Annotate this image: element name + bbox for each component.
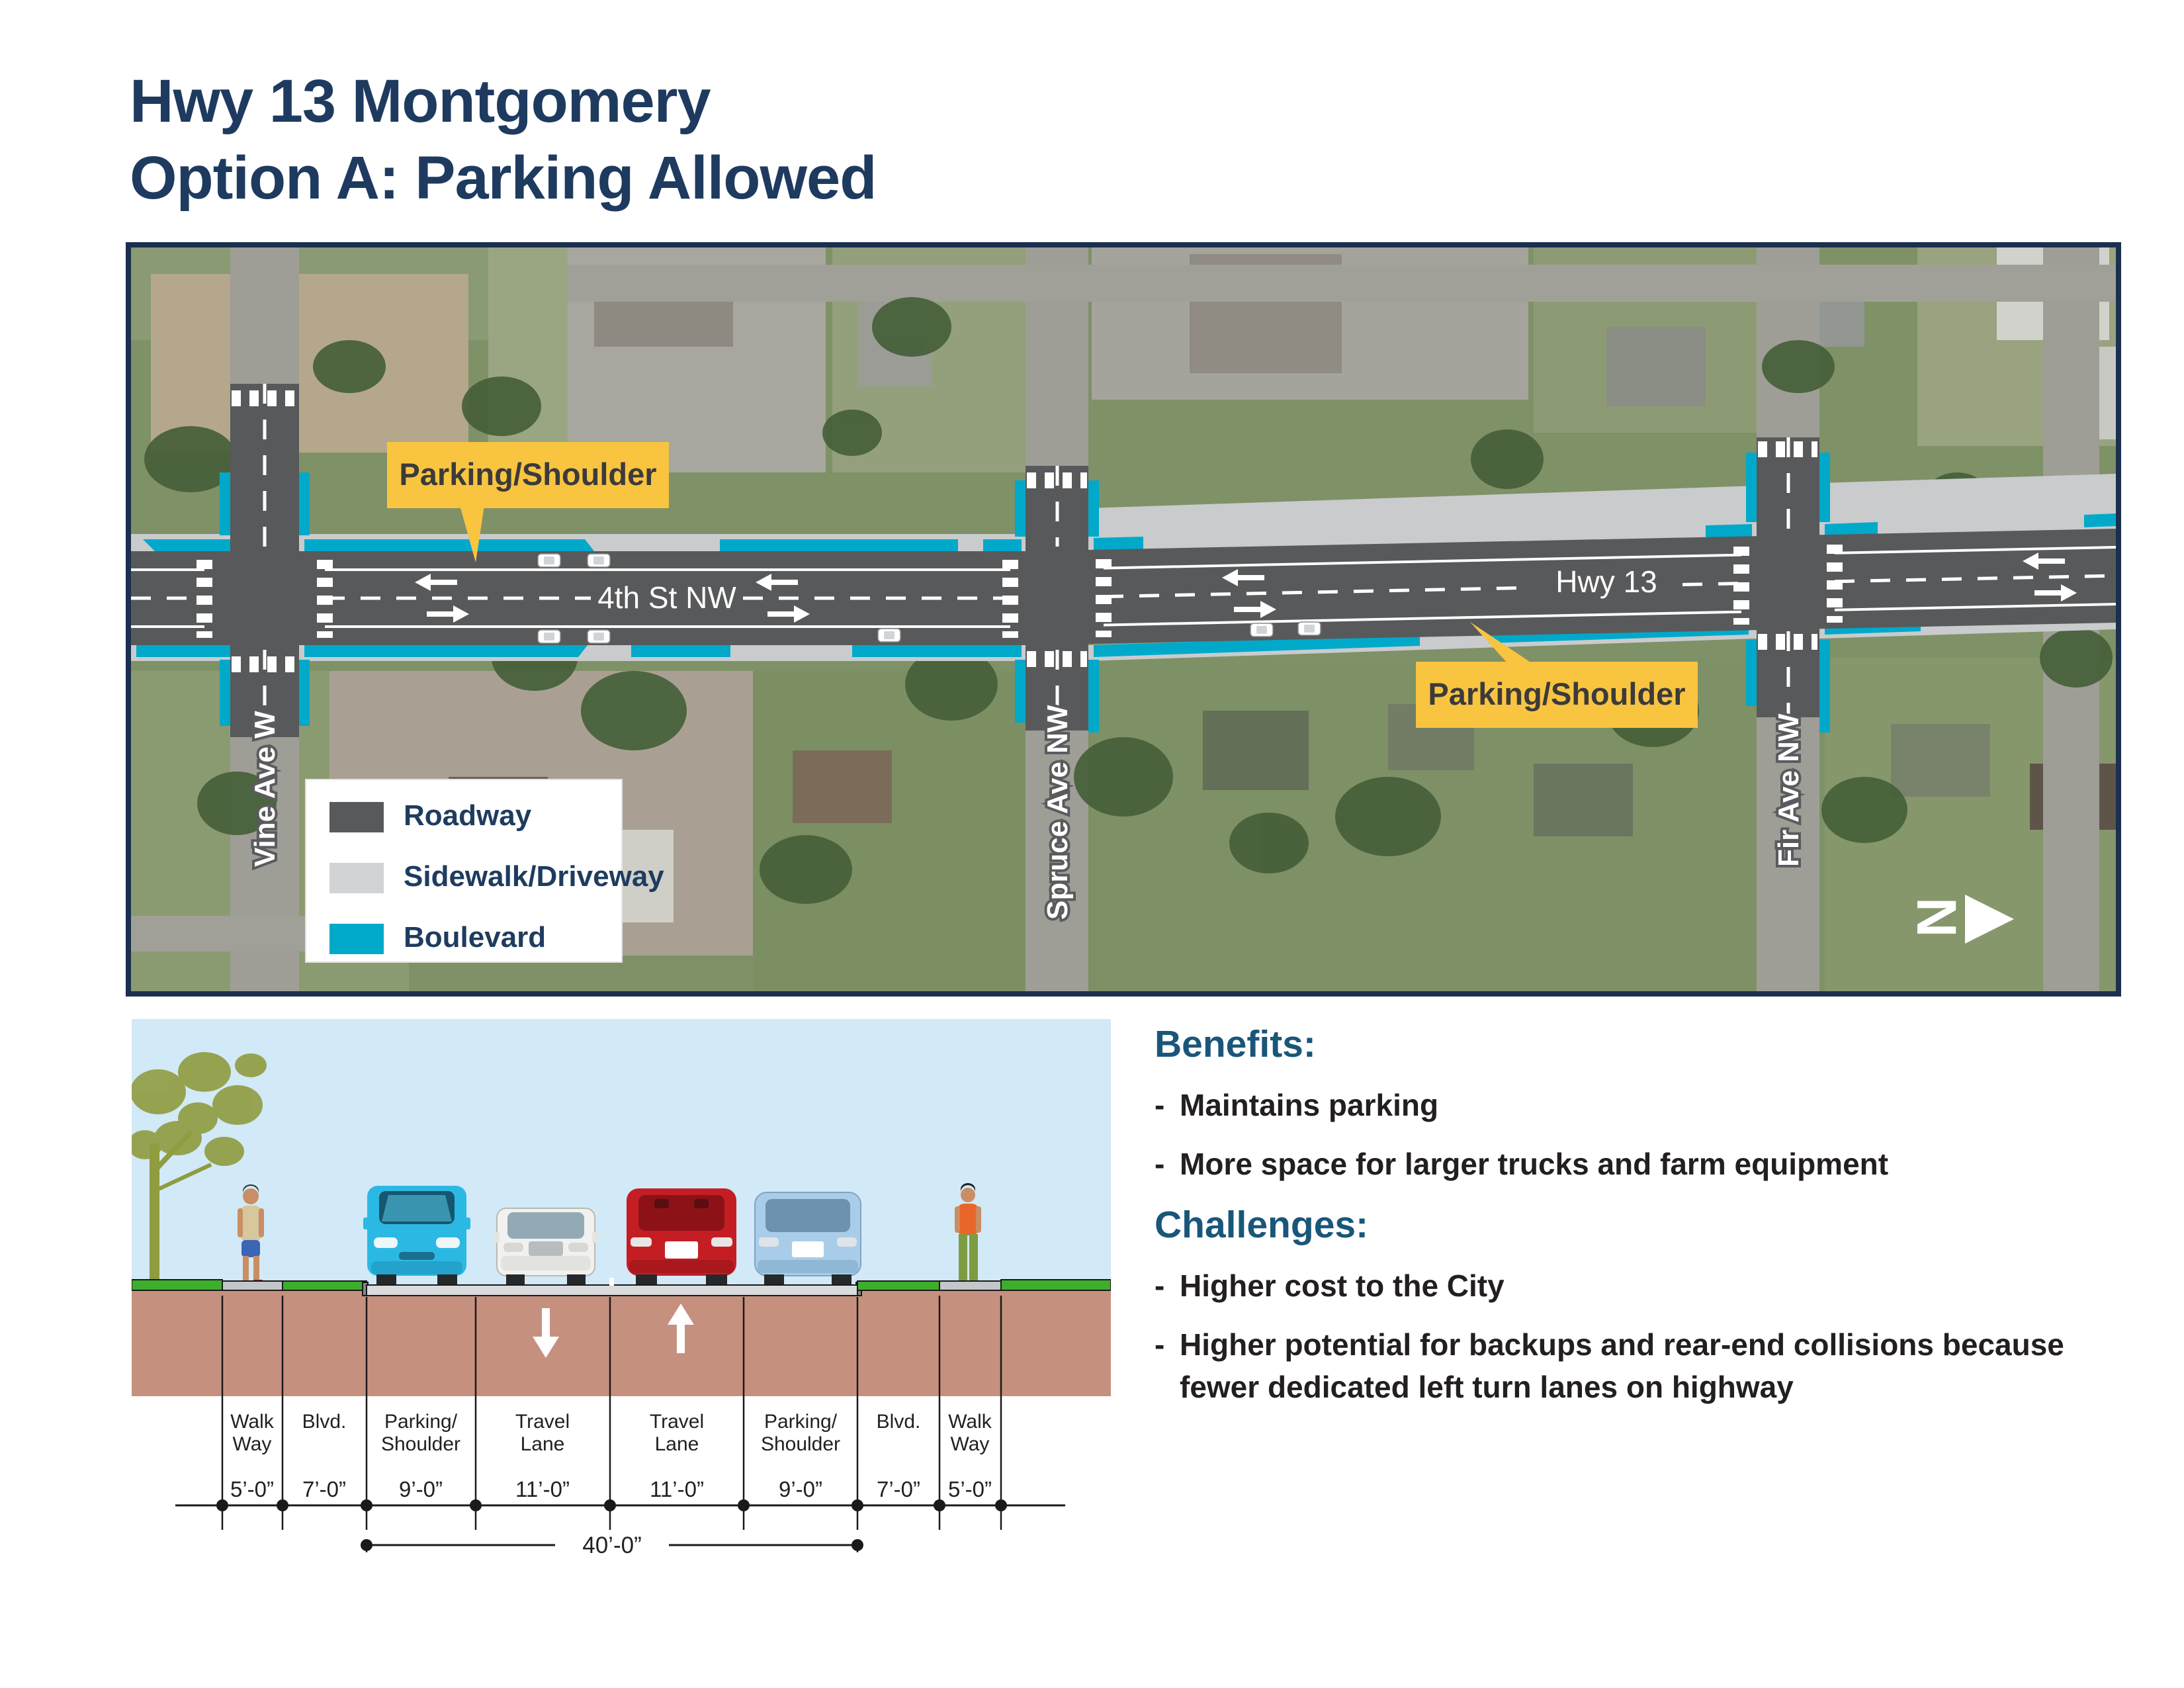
legend-swatch-sidewalk: [329, 863, 384, 893]
earth: [132, 1290, 1111, 1396]
car-icon: [588, 630, 610, 643]
lane-name: Way: [951, 1433, 990, 1455]
lane-width: 5’-0”: [230, 1477, 274, 1501]
street-label-spruce: Spruce Ave NW: [1041, 705, 1074, 920]
lane-width: 11’-0”: [515, 1477, 570, 1501]
legend-label-roadway: Roadway: [404, 799, 532, 832]
challenges-heading: Challenges:: [1155, 1203, 2173, 1247]
car-icon: [538, 630, 560, 643]
legend-label-sidewalk: Sidewalk/Driveway: [404, 860, 664, 893]
bullet-dash: -: [1155, 1143, 1180, 1185]
bullet-dash: -: [1155, 1085, 1180, 1126]
lane-width: 9’-0”: [779, 1477, 822, 1501]
lane-name: Shoulder: [761, 1433, 840, 1455]
benefit-text: More space for larger trucks and farm eq…: [1180, 1143, 1888, 1185]
car-red-suv-rear: [627, 1188, 736, 1286]
lane-labels: Walk Way Blvd. Parking/ Shoulder Travel …: [230, 1411, 992, 1555]
challenge-text: Higher potential for backups and rear-en…: [1180, 1324, 2064, 1408]
lane-width: 5’-0”: [948, 1477, 992, 1501]
challenge-text-line: Higher potential for backups and rear-en…: [1180, 1324, 2064, 1366]
lane-width: 7’-0”: [302, 1477, 346, 1501]
lane-name: Blvd.: [877, 1411, 921, 1433]
car-white-front: [493, 1208, 599, 1286]
callout-label: Parking/Shoulder: [1428, 676, 1685, 711]
benefit-text: Maintains parking: [1180, 1085, 1438, 1126]
page-title-line1: Hwy 13 Montgomery: [130, 64, 876, 140]
bullet-dash: -: [1155, 1324, 1180, 1408]
challenge-item: - Higher cost to the City: [1155, 1265, 2173, 1307]
lane-name: Lane: [655, 1433, 699, 1455]
legend-swatch-roadway: [329, 802, 384, 832]
lane-name: Travel: [650, 1411, 704, 1433]
lane-name: Lane: [521, 1433, 565, 1455]
page-title: Hwy 13 Montgomery Option A: Parking Allo…: [130, 64, 876, 217]
lane-name: Walk: [230, 1411, 275, 1433]
road-label-4th-st: 4th St NW: [597, 580, 736, 615]
challenge-text-line: fewer dedicated left turn lanes on highw…: [1180, 1366, 2064, 1408]
lane-width: 9’-0”: [399, 1477, 443, 1501]
benefits-heading: Benefits:: [1155, 1022, 2173, 1066]
lane-name: Blvd.: [302, 1411, 347, 1433]
lane-name: Parking/: [764, 1411, 838, 1433]
challenge-text: Higher cost to the City: [1180, 1265, 1505, 1307]
page-title-line2: Option A: Parking Allowed: [130, 140, 876, 217]
street-label-fir: Fir Ave NW: [1772, 713, 1805, 867]
car-icon: [1298, 622, 1321, 635]
cross-section-diagram: Walk Way Blvd. Parking/ Shoulder Travel …: [132, 1019, 1111, 1555]
street-label-vine: Vine Ave W: [249, 711, 281, 867]
car-icon: [538, 554, 560, 567]
road-center-tick: [609, 1278, 614, 1286]
map-legend: Roadway Sidewalk/Driveway Boulevard: [306, 779, 664, 962]
lane-name: Parking/: [384, 1411, 458, 1433]
lane-width: 7’-0”: [877, 1477, 920, 1501]
callout-label: Parking/Shoulder: [399, 457, 656, 492]
challenge-item: - Higher potential for backups and rear-…: [1155, 1324, 2173, 1408]
car-blue-suv-rear: [755, 1192, 861, 1286]
lane-name: Walk: [948, 1411, 992, 1433]
road-label-hwy13: Hwy 13: [1555, 564, 1657, 599]
aerial-map: Vine Ave W Spruce Ave NW Fir Ave NW 4th …: [131, 247, 2116, 991]
legend-label-boulevard: Boulevard: [404, 921, 546, 954]
lane-width: 11’-0”: [650, 1477, 704, 1501]
car-icon: [878, 629, 900, 642]
total-width-label: 40’-0”: [582, 1533, 641, 1555]
legend-swatch-boulevard: [329, 924, 384, 954]
notes-block: Benefits: - Maintains parking - More spa…: [1155, 1022, 2173, 1425]
lane-name: Shoulder: [381, 1433, 460, 1455]
aerial-map-panel: Vine Ave W Spruce Ave NW Fir Ave NW 4th …: [126, 242, 2121, 997]
lane-name: Travel: [515, 1411, 570, 1433]
benefit-item: - More space for larger trucks and farm …: [1155, 1143, 2173, 1185]
benefit-item: - Maintains parking: [1155, 1085, 2173, 1126]
poster-page: Hwy 13 Montgomery Option A: Parking Allo…: [0, 0, 2184, 1688]
lane-name: Way: [233, 1433, 272, 1455]
car-icon: [1250, 623, 1273, 637]
car-icon: [588, 554, 610, 567]
bullet-dash: -: [1155, 1265, 1180, 1307]
north-letter: N: [1905, 897, 1968, 938]
car-cyan-van-front: [363, 1186, 470, 1286]
